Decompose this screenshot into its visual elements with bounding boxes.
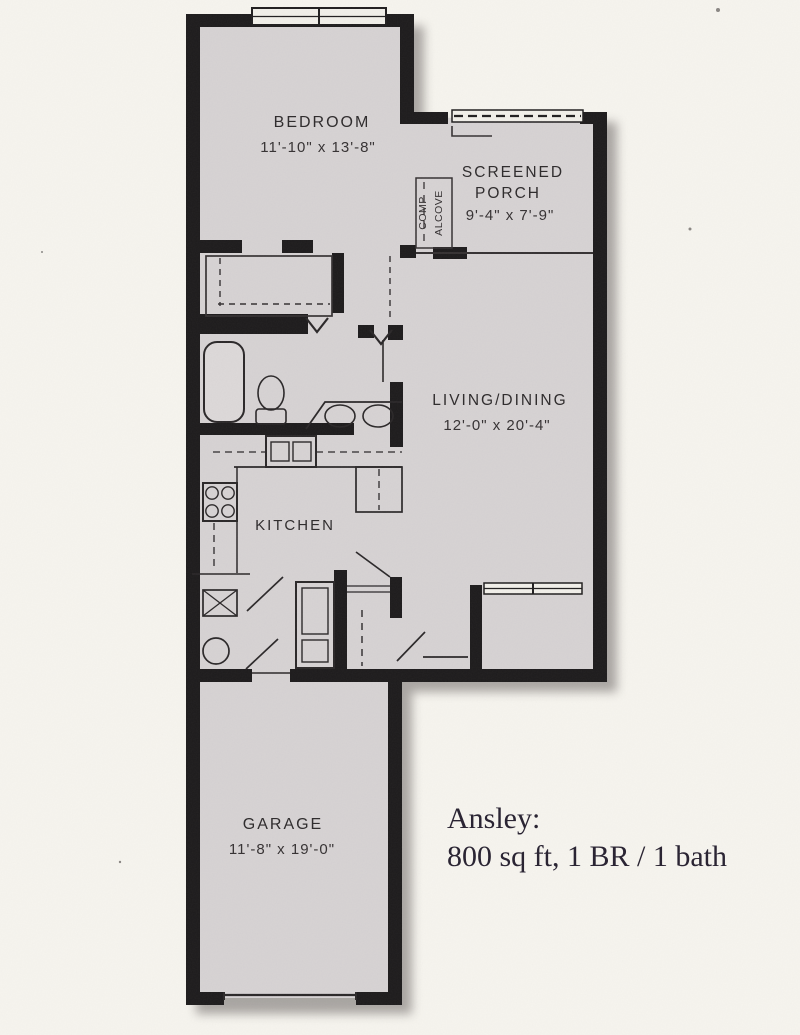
floor-plan-page: BEDROOM 11'-10" x 13'-8" SCREENED PORCH … xyxy=(0,0,800,1035)
scan-grain-overlay xyxy=(0,0,800,1035)
floor-plan-drawing: BEDROOM 11'-10" x 13'-8" SCREENED PORCH … xyxy=(0,0,800,1035)
